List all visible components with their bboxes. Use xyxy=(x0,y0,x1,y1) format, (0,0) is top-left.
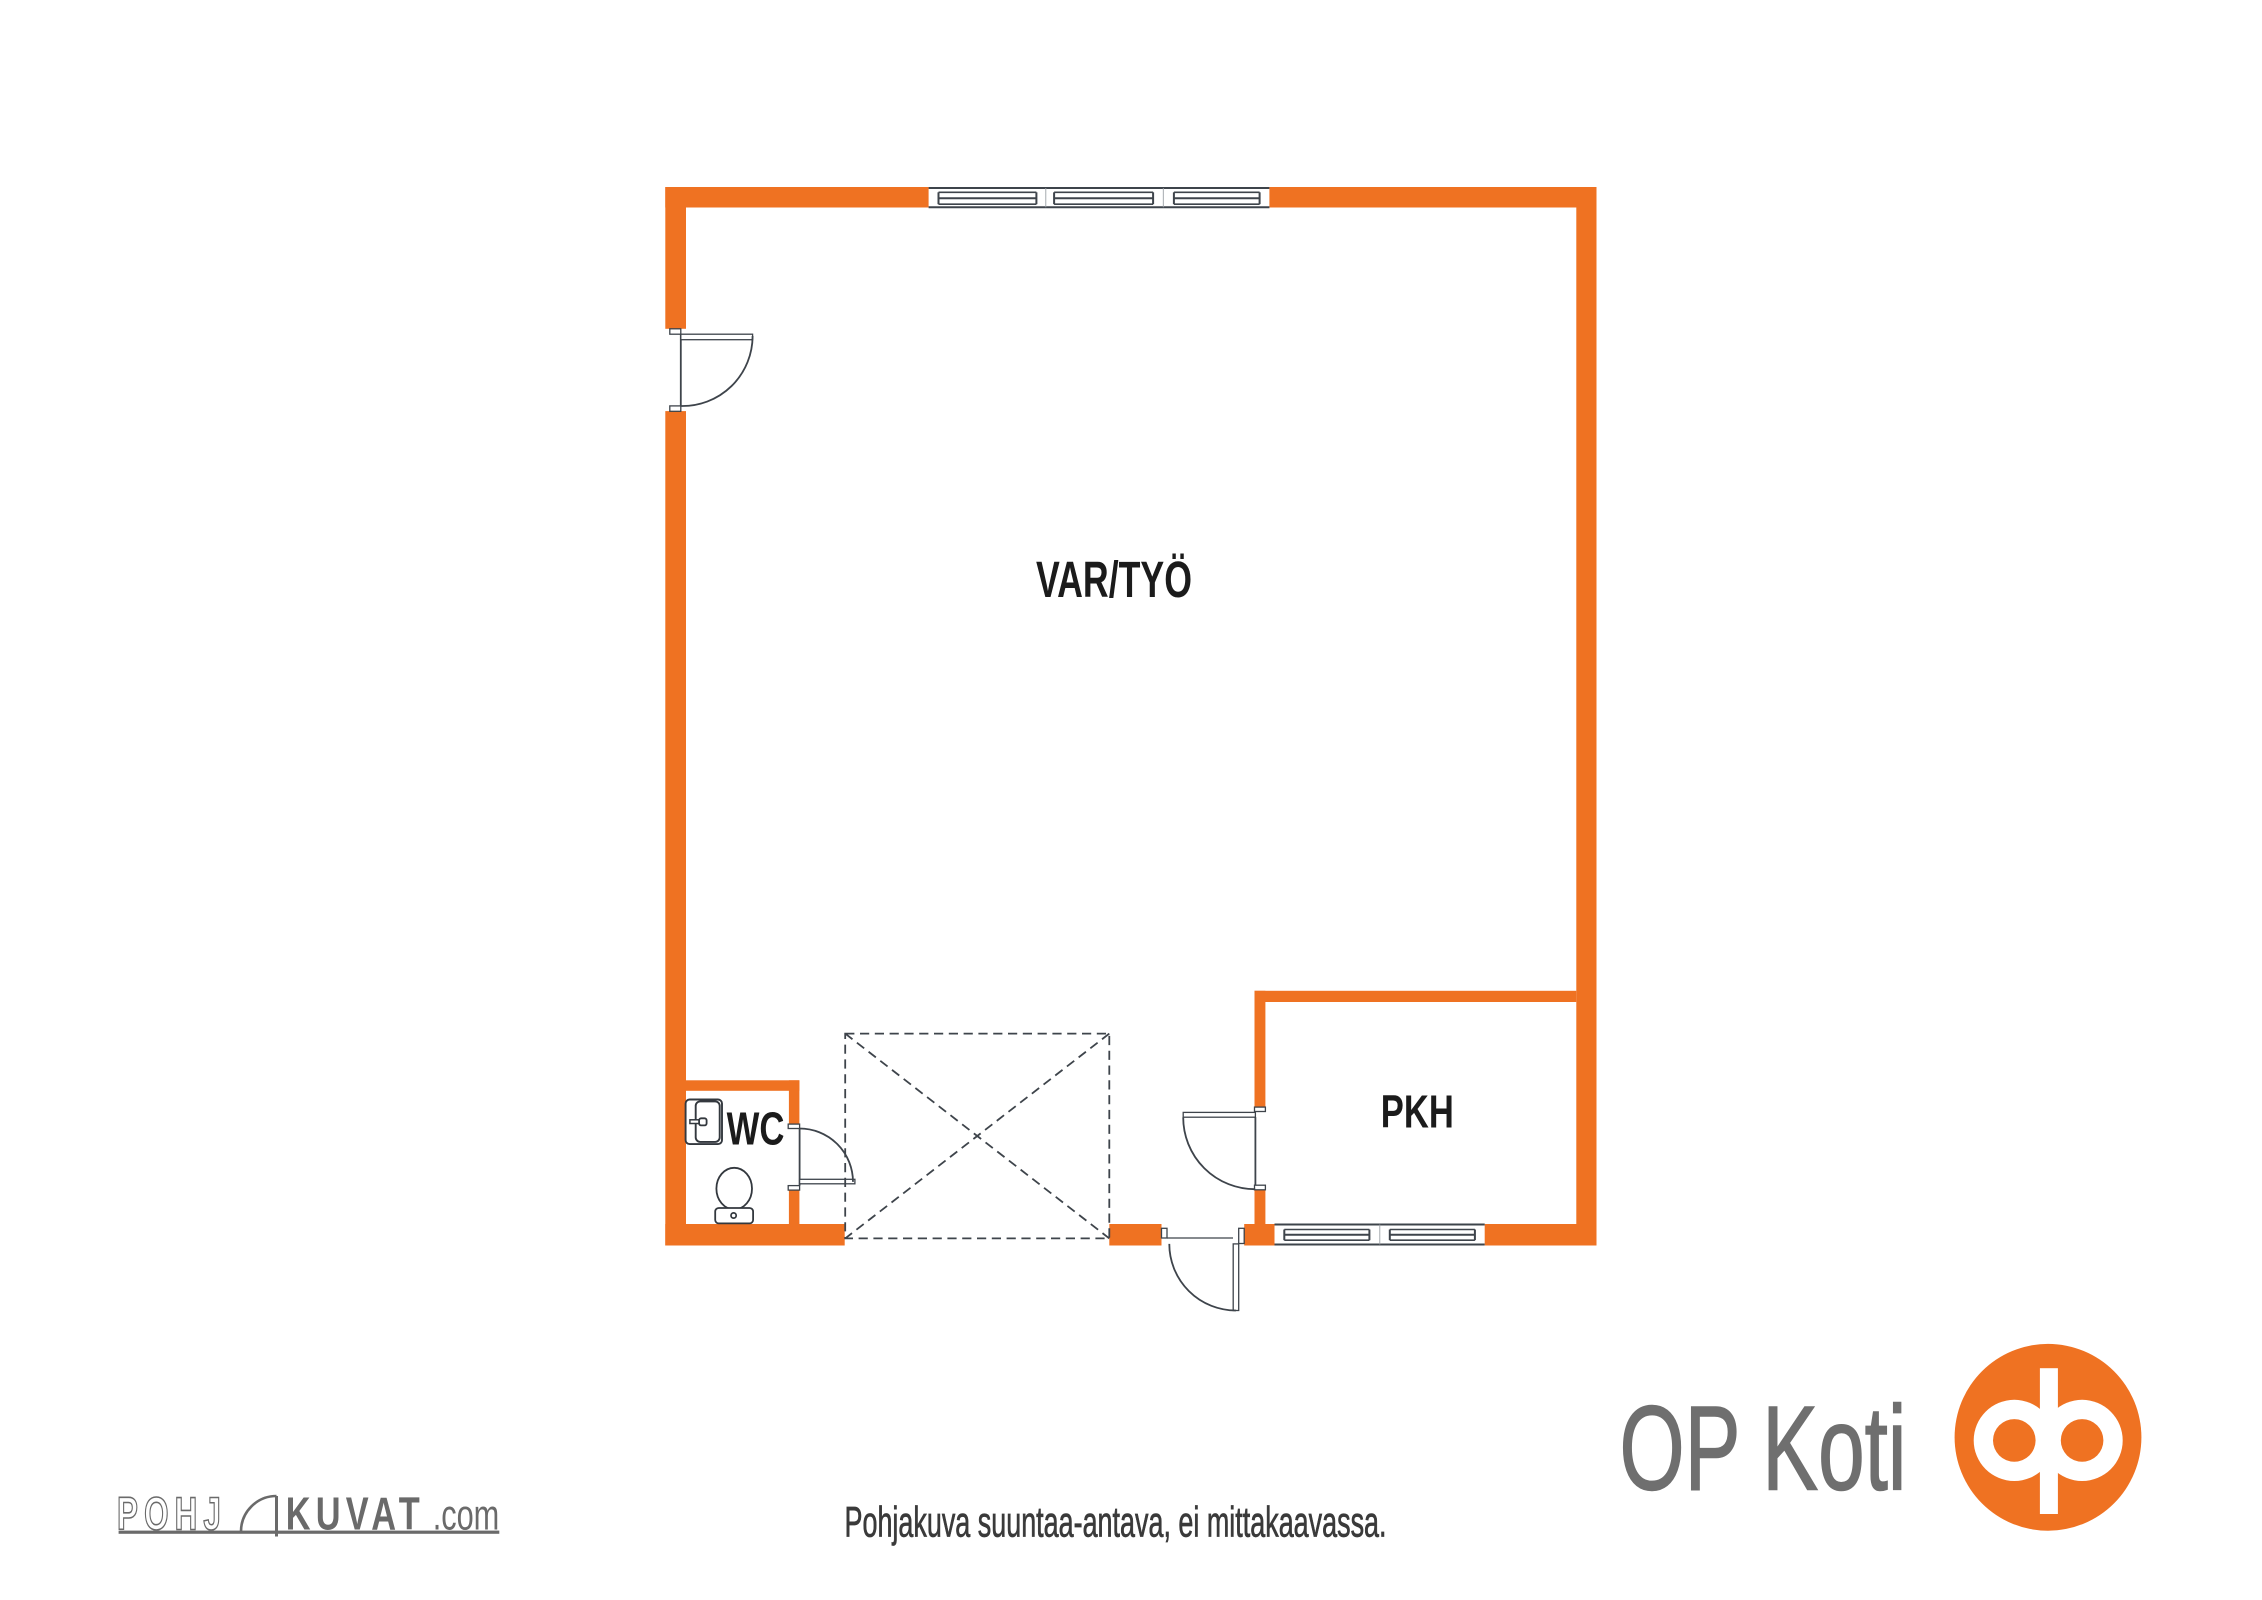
svg-text:Pohjakuva suuntaa-antava, ei m: Pohjakuva suuntaa-antava, ei mittakaavas… xyxy=(845,1500,1387,1547)
svg-text:OP Koti: OP Koti xyxy=(1620,1382,1907,1516)
svg-text:WC: WC xyxy=(727,1103,785,1155)
svg-text:VAR/TYÖ: VAR/TYÖ xyxy=(1036,551,1192,608)
svg-text:PKH: PKH xyxy=(1381,1086,1454,1138)
